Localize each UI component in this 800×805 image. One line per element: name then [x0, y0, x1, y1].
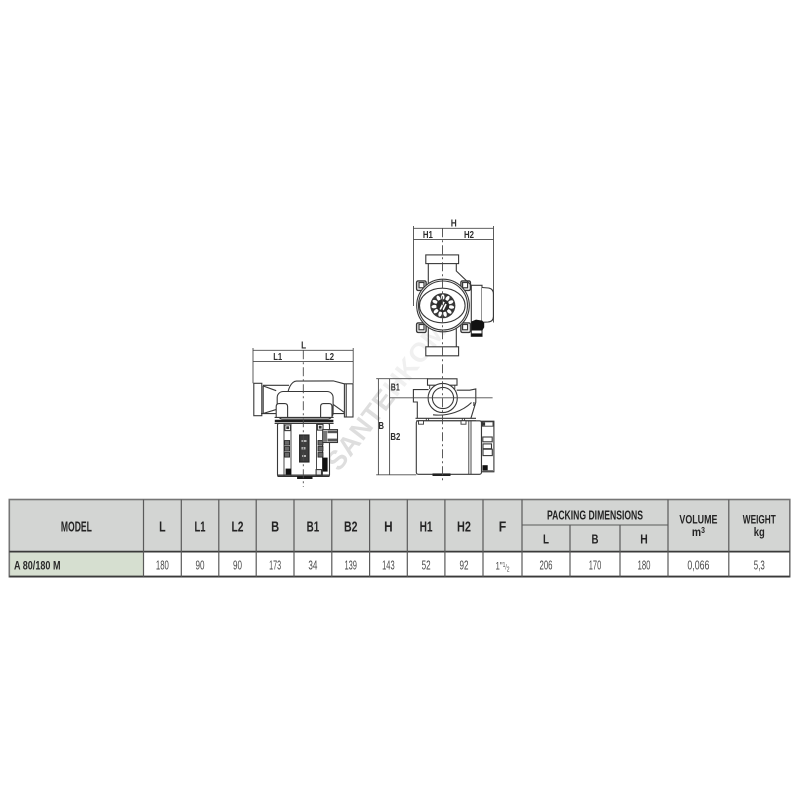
- svg-text:34: 34: [308, 559, 317, 573]
- svg-text:H: H: [451, 218, 457, 229]
- svg-text:B: B: [592, 532, 599, 547]
- svg-text:180: 180: [638, 559, 651, 573]
- svg-text:PACKING DIMENSIONS: PACKING DIMENSIONS: [547, 509, 643, 523]
- svg-text:L2: L2: [325, 352, 334, 363]
- svg-text:0,066: 0,066: [687, 559, 709, 573]
- svg-text:H2: H2: [457, 519, 471, 536]
- svg-text:180: 180: [156, 559, 169, 573]
- svg-text:B: B: [378, 421, 384, 432]
- svg-text:A 80/180 M: A 80/180 M: [14, 558, 61, 572]
- svg-text:H: H: [640, 532, 648, 547]
- svg-text:139: 139: [344, 559, 357, 573]
- svg-text:52: 52: [422, 559, 431, 573]
- svg-text:B1: B1: [307, 519, 320, 536]
- svg-text:B: B: [271, 519, 279, 536]
- svg-text:143: 143: [382, 559, 395, 573]
- svg-text:H: H: [384, 519, 393, 536]
- svg-text:L: L: [159, 519, 166, 536]
- svg-text:206: 206: [540, 559, 553, 573]
- svg-text:L1: L1: [273, 352, 282, 363]
- svg-text:kg: kg: [754, 525, 765, 539]
- svg-text:H1: H1: [423, 230, 433, 241]
- svg-text:L1: L1: [195, 519, 206, 536]
- svg-text:H2: H2: [464, 230, 474, 241]
- svg-text:90: 90: [196, 559, 205, 573]
- svg-text:90: 90: [233, 559, 242, 573]
- svg-text:92: 92: [460, 559, 469, 573]
- svg-text:L: L: [543, 532, 549, 547]
- svg-text:173: 173: [269, 559, 281, 573]
- svg-text:L2: L2: [232, 519, 244, 536]
- svg-text:L: L: [301, 340, 306, 351]
- svg-text:B2: B2: [344, 519, 358, 536]
- svg-text:F: F: [499, 519, 507, 536]
- svg-text:170: 170: [589, 559, 602, 573]
- svg-text:5,3: 5,3: [754, 559, 765, 573]
- svg-text:H1: H1: [420, 519, 433, 536]
- svg-text:B2: B2: [390, 432, 400, 443]
- svg-text:MODEL: MODEL: [61, 519, 92, 536]
- svg-text:B1: B1: [391, 382, 400, 393]
